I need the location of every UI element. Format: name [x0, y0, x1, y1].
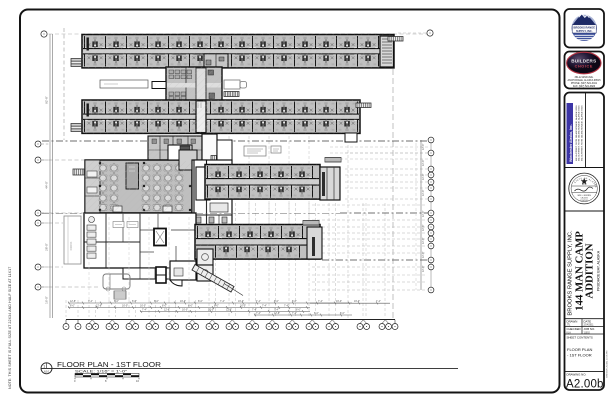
svg-text:16'-0": 16'-0" — [240, 305, 246, 308]
svg-text:7'-4": 7'-4" — [284, 305, 289, 308]
svg-text:8'-0": 8'-0" — [274, 300, 279, 303]
svg-text:12'-8": 12'-8" — [70, 300, 76, 303]
svg-text:7'-4": 7'-4" — [292, 312, 297, 315]
svg-text:16'-0": 16'-0" — [208, 309, 214, 312]
svg-text:12'-8": 12'-8" — [422, 174, 425, 180]
svg-text:8'-0": 8'-0" — [162, 305, 167, 308]
svg-text:Winchester Alaska, Inc.: Winchester Alaska, Inc. — [569, 124, 573, 162]
svg-text:FLOOR PLAN - 1ST FLOOR: FLOOR PLAN - 1ST FLOOR — [57, 360, 162, 369]
svg-text:44'-0": 44'-0" — [45, 181, 49, 189]
svg-text:16'-0": 16'-0" — [122, 305, 128, 308]
svg-text:DRAWING NO.: DRAWING NO. — [567, 372, 587, 376]
svg-text:1: 1 — [43, 364, 45, 368]
svg-text:12'-8": 12'-8" — [226, 309, 232, 312]
svg-text:16'-0": 16'-0" — [140, 305, 146, 308]
svg-text:7'-4": 7'-4" — [88, 300, 93, 303]
svg-text:12'-8": 12'-8" — [422, 190, 425, 196]
svg-text:8'-0": 8'-0" — [314, 312, 319, 315]
svg-text:BUILDERS: BUILDERS — [571, 58, 596, 63]
svg-text:7'-4": 7'-4" — [220, 300, 225, 303]
svg-text:SHEET CONTENTS: SHEET CONTENTS — [567, 335, 593, 339]
svg-text:12'-8": 12'-8" — [164, 309, 170, 312]
svg-text:8'-0": 8'-0" — [154, 300, 159, 303]
svg-text:ADDITION: ADDITION — [584, 243, 596, 298]
svg-text:GREGOR 2/24/11 10:05 PM: GREGOR 2/24/11 10:05 PM — [607, 350, 609, 378]
svg-text:8'-0": 8'-0" — [198, 300, 203, 303]
svg-text:DATE: DATE — [584, 319, 592, 323]
svg-text:12'-8": 12'-8" — [422, 225, 425, 231]
svg-text:7'-4": 7'-4" — [262, 305, 267, 308]
svg-text:PRUDHOE BAY, ALASKA: PRUDHOE BAY, ALASKA — [597, 250, 601, 291]
svg-text:NOTE: THIS SHEET IS FULL SIZE: NOTE: THIS SHEET IS FULL SIZE AT 22X34 A… — [8, 267, 12, 389]
svg-text:FAX: (907) 522-3826: FAX: (907) 522-3826 — [573, 85, 596, 88]
svg-text:BROOKS RANGE: BROOKS RANGE — [573, 25, 595, 29]
svg-text:6613 A STREET, SUITE 100 ANC: 6613 A STREET, SUITE 100 ANCHORAGE, ALAS… — [580, 105, 583, 161]
svg-text:6613 A STREET, SUITE 100 ANC: 6613 A STREET, SUITE 100 ANCHORAGE, ALAS… — [578, 105, 581, 161]
svg-text:16'-0": 16'-0" — [45, 296, 49, 304]
svg-text:CHECKED: CHECKED — [567, 327, 581, 331]
svg-text:7'-4": 7'-4" — [256, 312, 261, 315]
svg-text:A2.0: A2.0 — [44, 371, 50, 374]
svg-text:16'-0": 16'-0" — [182, 309, 188, 312]
svg-text:12'-8": 12'-8" — [422, 252, 425, 258]
svg-text:12'-8": 12'-8" — [422, 160, 425, 166]
svg-text:16'-0": 16'-0" — [180, 300, 186, 303]
svg-text:12'-8": 12'-8" — [422, 238, 425, 244]
svg-text:KLA: KLA — [567, 331, 572, 334]
svg-text:16'-0": 16'-0" — [336, 300, 342, 303]
svg-text:12'-8": 12'-8" — [422, 144, 425, 150]
svg-text:SUPPLY, INC.: SUPPLY, INC. — [576, 29, 593, 33]
svg-text:8'-0": 8'-0" — [70, 305, 75, 308]
svg-text:8'-0": 8'-0" — [132, 300, 137, 303]
svg-text:CE-5672: CE-5672 — [581, 197, 588, 199]
svg-text:2/24/2011: 2/24/2011 — [580, 200, 588, 202]
svg-text:8'-0": 8'-0" — [340, 312, 345, 315]
svg-text:12'-8": 12'-8" — [274, 312, 280, 315]
svg-text:8'-0": 8'-0" — [292, 300, 297, 303]
svg-text:DOCK: DOCK — [69, 242, 73, 251]
svg-text:92'-8": 92'-8" — [45, 96, 49, 104]
svg-text:JOB NO.: JOB NO. — [584, 327, 596, 331]
svg-text:CHOICE: CHOICE — [575, 64, 593, 68]
svg-text:12'-8": 12'-8" — [422, 211, 425, 217]
svg-text:16'-0": 16'-0" — [354, 300, 360, 303]
svg-text:8'-0": 8'-0" — [188, 305, 193, 308]
svg-text:7'-4": 7'-4" — [142, 309, 147, 312]
svg-text:6613 A STREET, SUITE 100 ANC: 6613 A STREET, SUITE 100 ANCHORAGE, ALAS… — [575, 105, 578, 161]
svg-text:11002: 11002 — [584, 332, 591, 334]
svg-text:28'-0": 28'-0" — [45, 243, 49, 251]
svg-text:- 1ST FLOOR: - 1ST FLOOR — [567, 352, 592, 357]
svg-text:12'-8": 12'-8" — [422, 266, 425, 272]
svg-text:DRAWN: DRAWN — [567, 319, 578, 323]
svg-text:12'-8": 12'-8" — [96, 305, 102, 308]
svg-text:7'-4": 7'-4" — [376, 300, 381, 303]
svg-text:16'-0": 16'-0" — [238, 300, 244, 303]
svg-text:A2.00b: A2.00b — [566, 379, 604, 391]
svg-text:8'-0": 8'-0" — [214, 305, 219, 308]
svg-text:SCALE: 1/16" = 1'-0": SCALE: 1/16" = 1'-0" — [75, 370, 128, 374]
svg-text:7'-4": 7'-4" — [318, 300, 323, 303]
svg-text:8'-0": 8'-0" — [114, 300, 119, 303]
svg-text:7'-4": 7'-4" — [256, 300, 261, 303]
